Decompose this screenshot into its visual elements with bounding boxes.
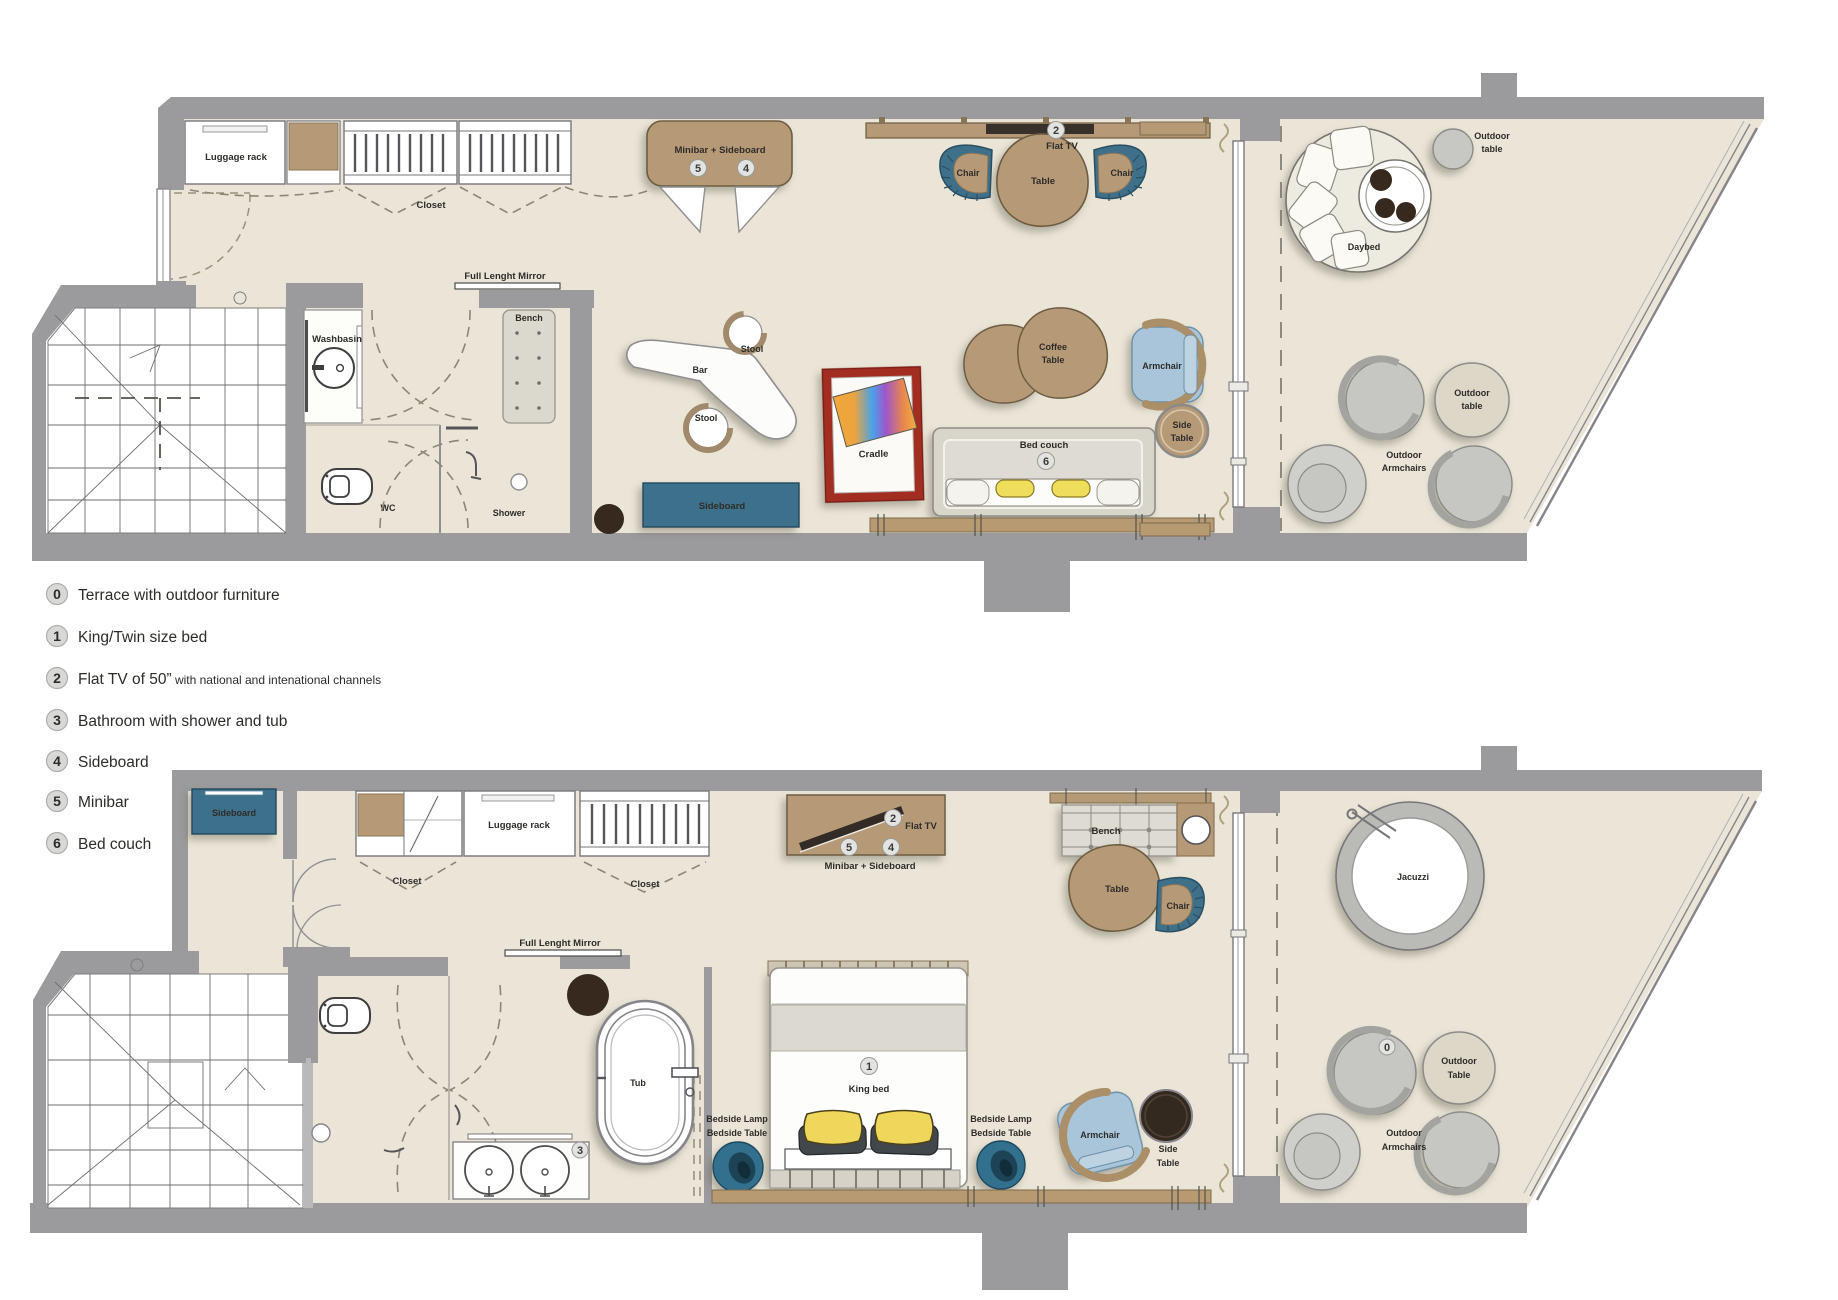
svg-text:Table: Table	[1157, 1158, 1180, 1168]
svg-text:King bed: King bed	[849, 1084, 890, 1095]
svg-text:Flat TV of 50” with national a: Flat TV of 50” with national and intenat…	[78, 671, 381, 688]
svg-text:Outdoor: Outdoor	[1441, 1056, 1477, 1066]
svg-text:Chair: Chair	[1110, 168, 1134, 178]
svg-text:Outdoor: Outdoor	[1386, 1128, 1422, 1138]
svg-text:5: 5	[53, 793, 61, 809]
svg-text:2: 2	[1053, 125, 1059, 137]
svg-text:Closet: Closet	[392, 876, 422, 887]
svg-text:3: 3	[577, 1145, 583, 1157]
svg-text:3: 3	[53, 712, 61, 728]
svg-text:Armchair: Armchair	[1080, 1130, 1120, 1140]
svg-text:1: 1	[53, 628, 61, 644]
svg-text:Outdoor: Outdoor	[1474, 131, 1510, 141]
svg-text:Outdoor: Outdoor	[1454, 388, 1490, 398]
svg-text:Luggage rack: Luggage rack	[205, 152, 267, 163]
svg-text:Closet: Closet	[416, 200, 446, 211]
svg-text:Jacuzzi: Jacuzzi	[1397, 872, 1429, 882]
svg-text:Table: Table	[1042, 355, 1065, 365]
svg-text:Bedside Table: Bedside Table	[707, 1128, 767, 1138]
svg-text:Sideboard: Sideboard	[212, 808, 256, 818]
svg-text:Table: Table	[1448, 1070, 1471, 1080]
svg-text:2: 2	[53, 670, 61, 686]
svg-text:Armchair: Armchair	[1142, 361, 1182, 371]
svg-text:Chair: Chair	[1166, 901, 1190, 911]
svg-text:Bedside Lamp: Bedside Lamp	[706, 1114, 768, 1124]
svg-text:Armchairs: Armchairs	[1382, 1142, 1427, 1152]
svg-text:Bench: Bench	[515, 313, 543, 323]
svg-text:2: 2	[890, 813, 896, 825]
svg-text:Stool: Stool	[695, 413, 718, 423]
svg-text:Flat TV: Flat TV	[1046, 141, 1078, 152]
svg-text:4: 4	[888, 842, 895, 854]
svg-text:Luggage rack: Luggage rack	[488, 820, 550, 831]
svg-text:Shower: Shower	[493, 508, 526, 518]
svg-text:Tub: Tub	[630, 1078, 646, 1088]
svg-text:Stool: Stool	[741, 344, 764, 354]
svg-text:Cradle: Cradle	[859, 449, 889, 461]
svg-text:Minibar + Sideboard: Minibar + Sideboard	[824, 861, 915, 872]
svg-text:Bedside Lamp: Bedside Lamp	[970, 1114, 1032, 1124]
svg-text:Minibar: Minibar	[78, 794, 129, 811]
svg-text:Closet: Closet	[630, 879, 660, 890]
svg-text:Side: Side	[1158, 1144, 1177, 1154]
svg-text:1: 1	[866, 1061, 872, 1073]
svg-text:Coffee: Coffee	[1039, 342, 1067, 352]
svg-text:Outdoor: Outdoor	[1386, 450, 1422, 460]
svg-text:5: 5	[846, 842, 852, 854]
svg-text:table: table	[1461, 401, 1482, 411]
svg-text:Flat TV: Flat TV	[905, 821, 937, 832]
svg-text:Table: Table	[1171, 433, 1194, 443]
svg-text:Full Lenght Mirror: Full Lenght Mirror	[464, 271, 546, 282]
svg-text:Bedside Table: Bedside Table	[971, 1128, 1031, 1138]
svg-text:4: 4	[743, 163, 750, 175]
svg-text:Full Lenght Mirror: Full Lenght Mirror	[519, 938, 601, 949]
svg-text:6: 6	[1043, 456, 1049, 468]
svg-text:Table: Table	[1105, 884, 1129, 895]
svg-text:Bed couch: Bed couch	[1020, 440, 1069, 451]
svg-text:Terrace with outdoor furniture: Terrace with outdoor furniture	[78, 587, 280, 604]
svg-text:Sideboard: Sideboard	[699, 501, 746, 512]
svg-text:4: 4	[53, 753, 61, 769]
svg-text:Side: Side	[1172, 420, 1191, 430]
svg-text:Washbasin: Washbasin	[312, 334, 362, 345]
svg-text:Chair: Chair	[956, 168, 980, 178]
svg-text:Sideboard: Sideboard	[78, 754, 149, 771]
svg-text:Minibar + Sideboard: Minibar + Sideboard	[674, 145, 765, 156]
svg-text:Bathroom with shower and tub: Bathroom with shower and tub	[78, 713, 287, 730]
svg-text:Bed couch: Bed couch	[78, 836, 151, 853]
svg-text:0: 0	[1384, 1042, 1390, 1054]
svg-text:Armchairs: Armchairs	[1382, 463, 1427, 473]
svg-text:Table: Table	[1031, 176, 1055, 187]
svg-text:Daybed: Daybed	[1348, 242, 1381, 252]
svg-text:table: table	[1481, 144, 1502, 154]
svg-text:6: 6	[53, 835, 61, 851]
svg-text:Bar: Bar	[692, 365, 708, 375]
svg-text:5: 5	[695, 163, 701, 175]
svg-text:King/Twin size bed: King/Twin size bed	[78, 629, 207, 646]
svg-text:0: 0	[53, 586, 61, 602]
svg-text:Bench: Bench	[1091, 826, 1120, 837]
